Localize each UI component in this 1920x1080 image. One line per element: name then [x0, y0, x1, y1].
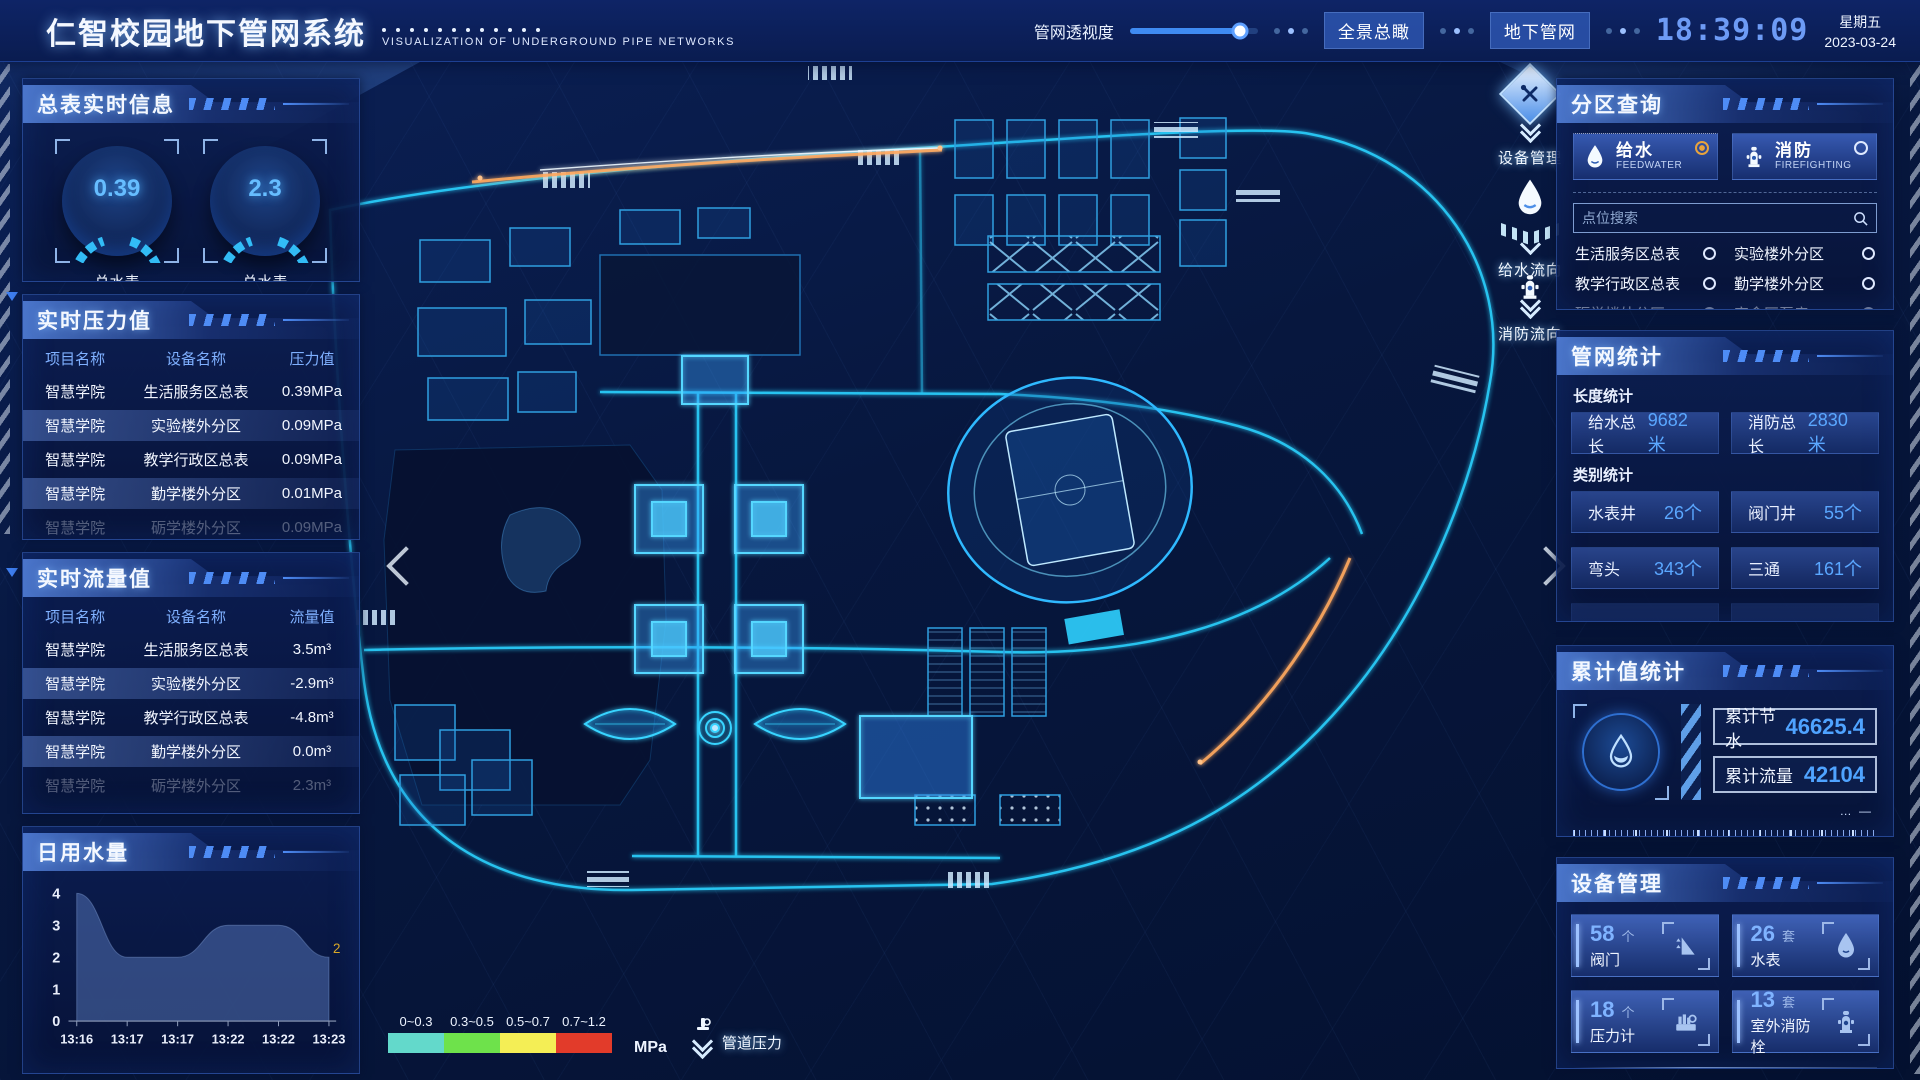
- radio-selected-icon[interactable]: [1695, 141, 1709, 155]
- tab-label: 消防: [1775, 142, 1852, 161]
- table-row: 智慧学院 勤学楼外分区 0.0m³: [23, 736, 359, 767]
- svg-text:2: 2: [52, 950, 60, 966]
- svg-text:4: 4: [52, 887, 60, 903]
- radio-unselected-icon[interactable]: [1703, 247, 1716, 260]
- dots-decor: [1274, 28, 1308, 34]
- table-row: 智慧学院 生活服务区总表 0.39MPa: [23, 376, 359, 407]
- dashboard-root: 设备管理 给水流向 消防流向 0~0.3: [0, 0, 1920, 1080]
- radio-unselected-icon[interactable]: [1703, 277, 1716, 290]
- zone-tabs: 给水 FEEDWATER 消防 FIREFIGHTING: [1557, 123, 1893, 180]
- waterdrop-icon: [1606, 734, 1636, 770]
- table-row: 智慧学院 砺学楼外分区 0.09MPa: [23, 512, 359, 540]
- list-item[interactable]: 教学行政区总表: [1575, 273, 1716, 294]
- brand-subtitle-block: VISUALIZATION OF UNDERGROUND PIPE NETWOR…: [382, 28, 735, 53]
- pressure-gauge-icon: [1662, 998, 1710, 1046]
- dorm-rows: [988, 236, 1160, 320]
- stat-box: 阀门井 55个: [1731, 491, 1879, 533]
- gauge-row: 0.39 总水表 当前压力值 2.3 总水表 瞬时流量: [23, 123, 359, 282]
- map-tool-label: 设备管理: [1498, 147, 1562, 168]
- list-item[interactable]: 生活服务区总表: [1575, 243, 1716, 264]
- category-stats-label: 类别统计: [1557, 454, 1893, 491]
- table-row: 智慧学院 生活服务区总表 3.5m³: [23, 634, 359, 665]
- legend-swatch: [500, 1033, 556, 1053]
- stat-box: 三通 161个: [1731, 547, 1879, 589]
- tab-label: 给水: [1616, 142, 1682, 161]
- gauge-label: 总水表 当前压力值: [55, 272, 179, 282]
- table-row: 智慧学院 砺学楼外分区 2.3m³: [23, 770, 359, 801]
- tab-firefighting[interactable]: 消防 FIREFIGHTING: [1732, 133, 1877, 180]
- hydrant-icon: [1822, 998, 1870, 1046]
- search-icon[interactable]: [1853, 211, 1868, 226]
- dots-decor: [1440, 28, 1474, 34]
- panel-footer-decor: [1573, 1067, 1877, 1069]
- pressure-gauge-icon: [693, 1016, 713, 1056]
- panel-daily-water: 日用水量 0123413:1613:1713:1713:2213:2213:23…: [22, 826, 360, 1074]
- panel-title: 总表实时信息: [37, 89, 175, 119]
- panel-master-meter: 总表实时信息 0.39 总水表 当前压力值: [22, 78, 360, 282]
- title-slashes-decor: [189, 314, 349, 326]
- panel-title: 累计值统计: [1571, 656, 1686, 686]
- panel-title: 实时流量值: [37, 563, 152, 593]
- title-slashes-decor: [189, 98, 349, 110]
- list-item[interactable]: 实验楼外分区: [1734, 243, 1875, 264]
- app-subtitle: VISUALIZATION OF UNDERGROUND PIPE NETWOR…: [382, 36, 735, 48]
- water-meter-icon: [1822, 922, 1870, 970]
- panel-cumulative-stats: 累计值统计 累计节水 46625.4 累计流量 42104 … —: [1556, 645, 1894, 837]
- date: 2023-03-24: [1824, 34, 1896, 50]
- slider-thumb[interactable]: [1231, 22, 1248, 39]
- transparency-slider[interactable]: [1130, 28, 1258, 34]
- panel-device-management: 设备管理 58个 阀门 26套 水表: [1556, 857, 1894, 1069]
- water-icon-frame: [1573, 704, 1669, 800]
- panel-realtime-flow: 实时流量值 项目名称 设备名称 流量值 智慧学院 生活服务区总表 3.5m³ 智…: [22, 552, 360, 814]
- slider-fill: [1130, 28, 1240, 34]
- stat-box: 弯头 343个: [1571, 547, 1719, 589]
- search-box[interactable]: [1573, 203, 1877, 233]
- list-item[interactable]: 宿舍区泵房: [1734, 303, 1875, 310]
- stat-box: 水表井 26个: [1571, 491, 1719, 533]
- gauge-value: 2.3: [203, 175, 327, 203]
- pipe-pressure-toggle[interactable]: 管道压力: [693, 1016, 782, 1056]
- radio-unselected-icon[interactable]: [1862, 247, 1875, 260]
- zone-list: 生活服务区总表 实验楼外分区 教学行政区总表 勤学楼外分区 砺学楼外分区 宿舍区…: [1557, 233, 1893, 310]
- panel-title-bar: 总表实时信息: [23, 85, 359, 123]
- date-block: 星期五 2023-03-24: [1824, 12, 1896, 50]
- legend-range: 0~0.3: [388, 1014, 444, 1053]
- search-input[interactable]: [1582, 210, 1853, 226]
- svg-text:3: 3: [52, 918, 60, 934]
- radio-unselected-icon[interactable]: [1703, 307, 1716, 310]
- plazas: [585, 709, 845, 744]
- legend-range: 0.7~1.2: [556, 1014, 612, 1053]
- clock: 18:39:09: [1656, 13, 1809, 48]
- table-header: 项目名称 设备名称 流量值: [23, 601, 359, 631]
- cumulative-saved-water: 累计节水 46625.4: [1713, 708, 1877, 745]
- tab-sublabel: FIREFIGHTING: [1775, 160, 1852, 171]
- stadium: [930, 359, 1216, 661]
- svg-text:0: 0: [52, 1014, 60, 1030]
- legend-range: 0.3~0.5: [444, 1014, 500, 1053]
- svg-text:13:23: 13:23: [312, 1032, 345, 1047]
- list-item[interactable]: 勤学楼外分区: [1734, 273, 1875, 294]
- title-slashes-decor: [189, 846, 349, 858]
- table-row: 智慧学院 教学行政区总表 -4.8m³: [23, 702, 359, 733]
- daily-water-chart: 0123413:1613:1713:1713:2213:2213:232: [31, 879, 351, 1054]
- stripe-decor: [1681, 704, 1701, 800]
- dots-decor: … —: [1840, 804, 1873, 818]
- tab-sublabel: FEEDWATER: [1616, 160, 1682, 171]
- gauge-label: 总水表 瞬时流量: [203, 272, 327, 282]
- valve-icon: [1662, 922, 1710, 970]
- svg-text:13:22: 13:22: [212, 1032, 245, 1047]
- table-row: 智慧学院 教学行政区总表 0.09MPa: [23, 444, 359, 475]
- waterdrop-icon: [1584, 144, 1606, 170]
- stat-box: 给水总长 9682米: [1571, 412, 1719, 454]
- svg-text:1: 1: [52, 982, 60, 998]
- device-card-pressure-gauges[interactable]: 18个 压力计: [1571, 990, 1719, 1053]
- legend-swatch: [388, 1033, 444, 1053]
- panel-network-stats: 管网统计 长度统计 给水总长 9682米 消防总长 2830米 类别统计 水表井…: [1556, 330, 1894, 622]
- brand: 仁智校园地下管网系统 VISUALIZATION OF UNDERGROUND …: [46, 9, 735, 53]
- ruler-decor: [1573, 830, 1877, 837]
- panel-title: 设备管理: [1571, 868, 1663, 898]
- legend-range-label: 0.3~0.5: [444, 1014, 500, 1033]
- title-slashes-decor: [1723, 98, 1883, 110]
- device-card-water-meters[interactable]: 26套 水表: [1732, 914, 1880, 977]
- header-bar: 仁智校园地下管网系统 VISUALIZATION OF UNDERGROUND …: [0, 0, 1920, 62]
- decor-triangle: [6, 568, 18, 577]
- title-slashes-decor: [1723, 665, 1883, 677]
- list-item[interactable]: 砺学楼外分区: [1575, 303, 1716, 310]
- svg-text:13:16: 13:16: [60, 1032, 93, 1047]
- stat-box-clipped: [1731, 603, 1879, 622]
- radio-unselected-icon[interactable]: [1854, 141, 1868, 155]
- table-row: 智慧学院 实验楼外分区 -2.9m³: [23, 668, 359, 699]
- legend-range-label: 0.7~1.2: [556, 1014, 612, 1033]
- table-row: 智慧学院 实验楼外分区 0.09MPa: [23, 410, 359, 441]
- radio-unselected-icon[interactable]: [1862, 307, 1875, 310]
- panel-realtime-pressure: 实时压力值 项目名称 设备名称 压力值 智慧学院 生活服务区总表 0.39MPa…: [22, 294, 360, 540]
- overview-button[interactable]: 全景总瞰: [1324, 12, 1424, 49]
- stat-box-clipped: [1571, 603, 1719, 622]
- legend-swatch: [556, 1033, 612, 1053]
- svg-text:13:22: 13:22: [262, 1032, 295, 1047]
- dots-decor: [382, 28, 735, 32]
- header-controls: 管网透视度 全景总瞰 地下管网 18:39:09 星期五 2023-03-24: [1034, 12, 1896, 50]
- svg-text:13:17: 13:17: [111, 1032, 144, 1047]
- flow-gauge: 2.3 总水表 瞬时流量: [203, 139, 327, 282]
- transparency-label: 管网透视度: [1034, 19, 1114, 43]
- panel-title: 实时压力值: [37, 305, 152, 335]
- length-stats-label: 长度统计: [1557, 375, 1893, 412]
- panel-title: 分区查询: [1571, 89, 1663, 119]
- hydrant-icon: [1743, 144, 1765, 170]
- decor-triangle: [6, 292, 18, 301]
- legend-swatch: [444, 1033, 500, 1053]
- device-card-outdoor-hydrants[interactable]: 13套 室外消防栓: [1732, 990, 1880, 1053]
- panel-title: 日用水量: [37, 837, 129, 867]
- weekday: 星期五: [1839, 12, 1881, 32]
- title-slashes-decor: [189, 572, 349, 584]
- pipe-pressure-label: 管道压力: [722, 1032, 782, 1053]
- tab-feedwater[interactable]: 给水 FEEDWATER: [1573, 133, 1718, 180]
- legend-range-label: 0.5~0.7: [500, 1014, 556, 1033]
- stat-box: 消防总长 2830米: [1731, 412, 1879, 454]
- gauge-value: 0.39: [55, 175, 179, 203]
- pressure-gauge: 0.39 总水表 当前压力值: [55, 139, 179, 282]
- svg-text:2: 2: [333, 941, 340, 956]
- pressure-legend: 0~0.3 0.3~0.5 0.5~0.7 0.7~1.2 MPa 管道压力: [388, 1014, 782, 1057]
- campus-3d-map[interactable]: [300, 60, 1556, 1080]
- legend-unit: MPa: [634, 1039, 667, 1057]
- dots-decor: [1606, 28, 1640, 34]
- waterdrop-icon: [1513, 178, 1547, 218]
- map-tool-label: 消防流向: [1498, 323, 1562, 344]
- panel-title: 管网统计: [1571, 341, 1663, 371]
- svg-text:13:17: 13:17: [161, 1032, 194, 1047]
- cumulative-flow: 累计流量 42104: [1713, 756, 1877, 793]
- app-title: 仁智校园地下管网系统: [46, 9, 366, 53]
- legend-range-label: 0~0.3: [388, 1014, 444, 1033]
- radio-unselected-icon[interactable]: [1862, 277, 1875, 290]
- pool: [1064, 609, 1124, 644]
- title-slashes-decor: [1723, 350, 1883, 362]
- underground-network-button[interactable]: 地下管网: [1490, 12, 1590, 49]
- title-slashes-decor: [1723, 877, 1883, 889]
- panel-zone-query: 分区查询 给水 FEEDWATER: [1556, 78, 1894, 310]
- device-card-valves[interactable]: 58个 阀门: [1571, 914, 1719, 977]
- table-header: 项目名称 设备名称 压力值: [23, 343, 359, 373]
- table-row: 智慧学院 勤学楼外分区 0.01MPa: [23, 478, 359, 509]
- edge-stripes-right: [1910, 64, 1920, 1074]
- legend-range: 0.5~0.7: [500, 1014, 556, 1053]
- dashed-divider: [1573, 192, 1877, 193]
